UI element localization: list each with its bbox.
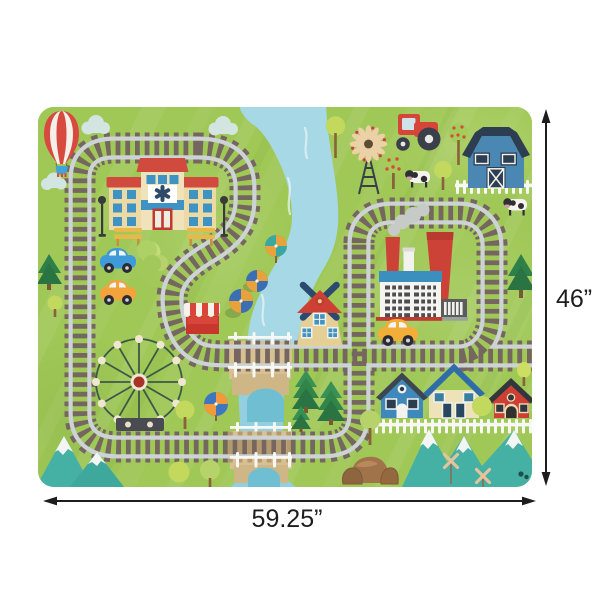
svg-text:59.25”: 59.25” <box>252 505 323 533</box>
svg-text:46”: 46” <box>556 285 592 313</box>
